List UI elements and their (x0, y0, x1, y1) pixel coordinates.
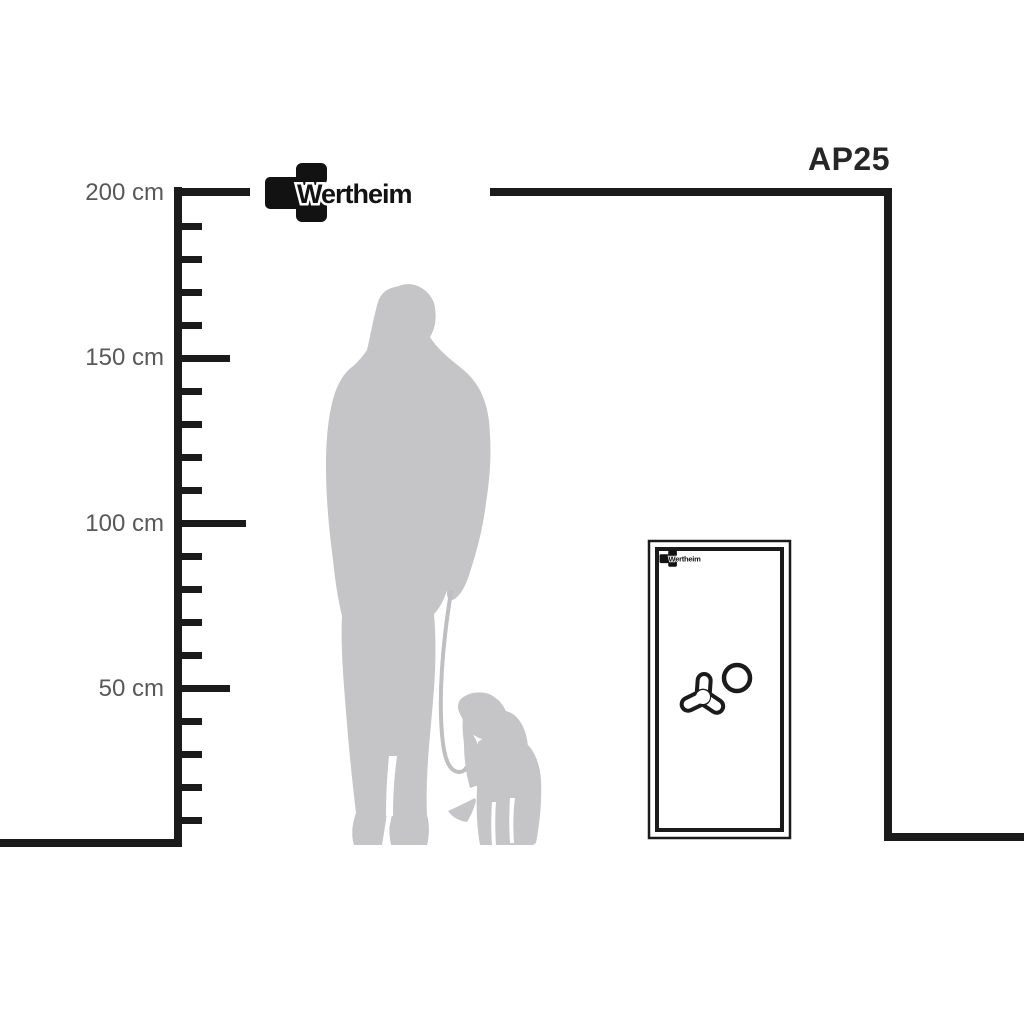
ruler-tick-90cm (174, 553, 202, 560)
safe-door (657, 549, 782, 830)
ruler-tick-50cm (174, 685, 230, 692)
wertheim-logo: Wertheim (263, 162, 463, 226)
floor-line-right (884, 833, 1024, 841)
ruler-tick-130cm (174, 421, 202, 428)
ruler-tick-120cm (174, 454, 202, 461)
ruler-tick-110cm (174, 487, 202, 494)
ruler-tick-10cm (174, 817, 202, 824)
size-comparison-diagram: 200 cm150 cm100 cm50 cm AP25 Wertheim (0, 0, 1024, 1024)
floor-line-left (0, 839, 182, 847)
ruler-tick-40cm (174, 718, 202, 725)
person-and-dog-silhouette (300, 270, 570, 850)
ruler-tick-100cm (174, 520, 246, 527)
ruler-label-200cm: 200 cm (40, 177, 164, 209)
combination-dial-icon (724, 665, 750, 691)
ruler-tick-150cm (174, 355, 230, 362)
ruler-tick-80cm (174, 586, 202, 593)
dog-body (477, 733, 542, 845)
ruler-label-150cm: 150 cm (40, 342, 164, 374)
dog-leash (441, 592, 466, 772)
ruler-label-100cm: 100 cm (40, 508, 164, 540)
ceiling-line-left-segment (174, 188, 250, 196)
ceiling-line-right-segment (490, 188, 892, 196)
ruler-tick-160cm (174, 322, 202, 329)
safe-drawing: Wertheim (645, 537, 795, 842)
ruler-tick-60cm (174, 652, 202, 659)
ruler-tick-140cm (174, 388, 202, 395)
wertheim-logo-text: Wertheim (297, 179, 412, 209)
ruler-tick-30cm (174, 751, 202, 758)
ruler-tick-170cm (174, 289, 202, 296)
ruler-tick-180cm (174, 256, 202, 263)
ruler-label-50cm: 50 cm (40, 673, 164, 705)
ruler-tick-70cm (174, 619, 202, 626)
model-name-label: AP25 (750, 141, 890, 178)
wall-line-right (884, 188, 892, 837)
ruler-tick-190cm (174, 223, 202, 230)
safe-brand-logo-text: Wertheim (669, 554, 702, 563)
ruler-vertical-line (174, 187, 182, 847)
dog-tail (448, 798, 476, 822)
ruler-tick-20cm (174, 784, 202, 791)
